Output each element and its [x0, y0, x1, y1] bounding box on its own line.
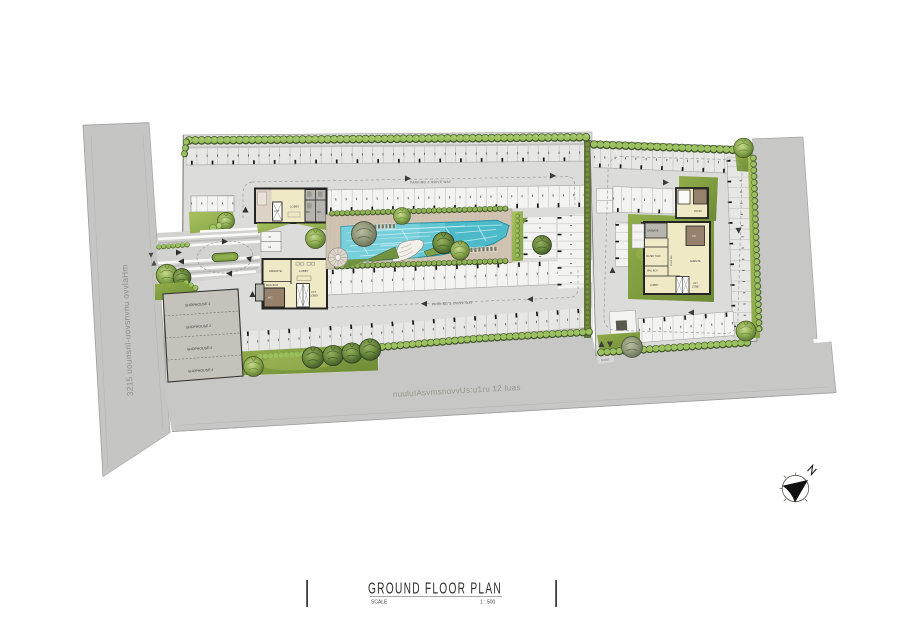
- svg-text:MAIL BOX: MAIL BOX: [647, 270, 658, 273]
- svg-text:SCALE: SCALE: [371, 600, 388, 606]
- svg-text:LOBBY: LOBBY: [650, 283, 659, 287]
- svg-text:WC: WC: [317, 211, 321, 214]
- svg-text:GARBAGE: GARBAGE: [647, 230, 659, 233]
- svg-text:PARKING & DRIVE WAY: PARKING & DRIVE WAY: [410, 180, 452, 185]
- svg-text:PUMP RM: PUMP RM: [671, 256, 673, 266]
- svg-text:KID: KID: [692, 235, 696, 238]
- svg-text:LIFT: LIFT: [693, 283, 698, 285]
- svg-text:IN OUT: IN OUT: [601, 357, 610, 362]
- svg-text:ROOM: ROOM: [694, 210, 701, 213]
- svg-text:LOBBY: LOBBY: [310, 294, 319, 297]
- svg-text:1 : 500: 1 : 500: [480, 600, 496, 606]
- svg-text:AMENITE: AMENITE: [269, 269, 282, 273]
- svg-text:WATER TANK: WATER TANK: [646, 255, 661, 258]
- svg-text:GROUND FLOOR PLAN: GROUND FLOOR PLAN: [368, 581, 502, 598]
- svg-text:LOBBY: LOBBY: [692, 286, 700, 288]
- svg-text:41: 41: [268, 245, 272, 249]
- svg-text:WC: WC: [306, 211, 310, 214]
- svg-text:LOBBY: LOBBY: [299, 269, 309, 273]
- svg-text:47: 47: [268, 235, 272, 239]
- svg-text:LOBBY: LOBBY: [290, 205, 299, 209]
- svg-text:WC: WC: [268, 296, 272, 300]
- svg-text:MAIL BOX: MAIL BOX: [266, 283, 278, 287]
- svg-text:LIFT: LIFT: [274, 209, 280, 213]
- svg-text:AMENITE: AMENITE: [690, 260, 701, 263]
